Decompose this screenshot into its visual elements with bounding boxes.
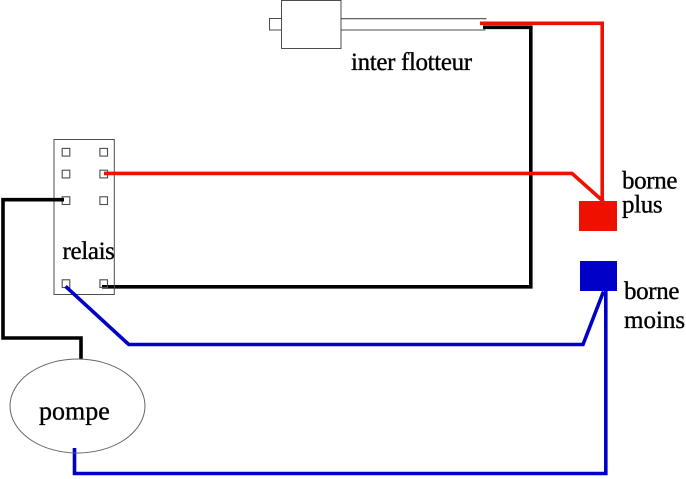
svg-text:moins: moins [624, 307, 685, 334]
svg-text:relais: relais [63, 238, 115, 265]
svg-text:borne: borne [622, 168, 677, 195]
svg-text:inter flotteur: inter flotteur [351, 49, 473, 76]
svg-text:pompe: pompe [39, 396, 110, 425]
svg-text:plus: plus [622, 192, 662, 219]
svg-text:borne: borne [624, 278, 679, 305]
